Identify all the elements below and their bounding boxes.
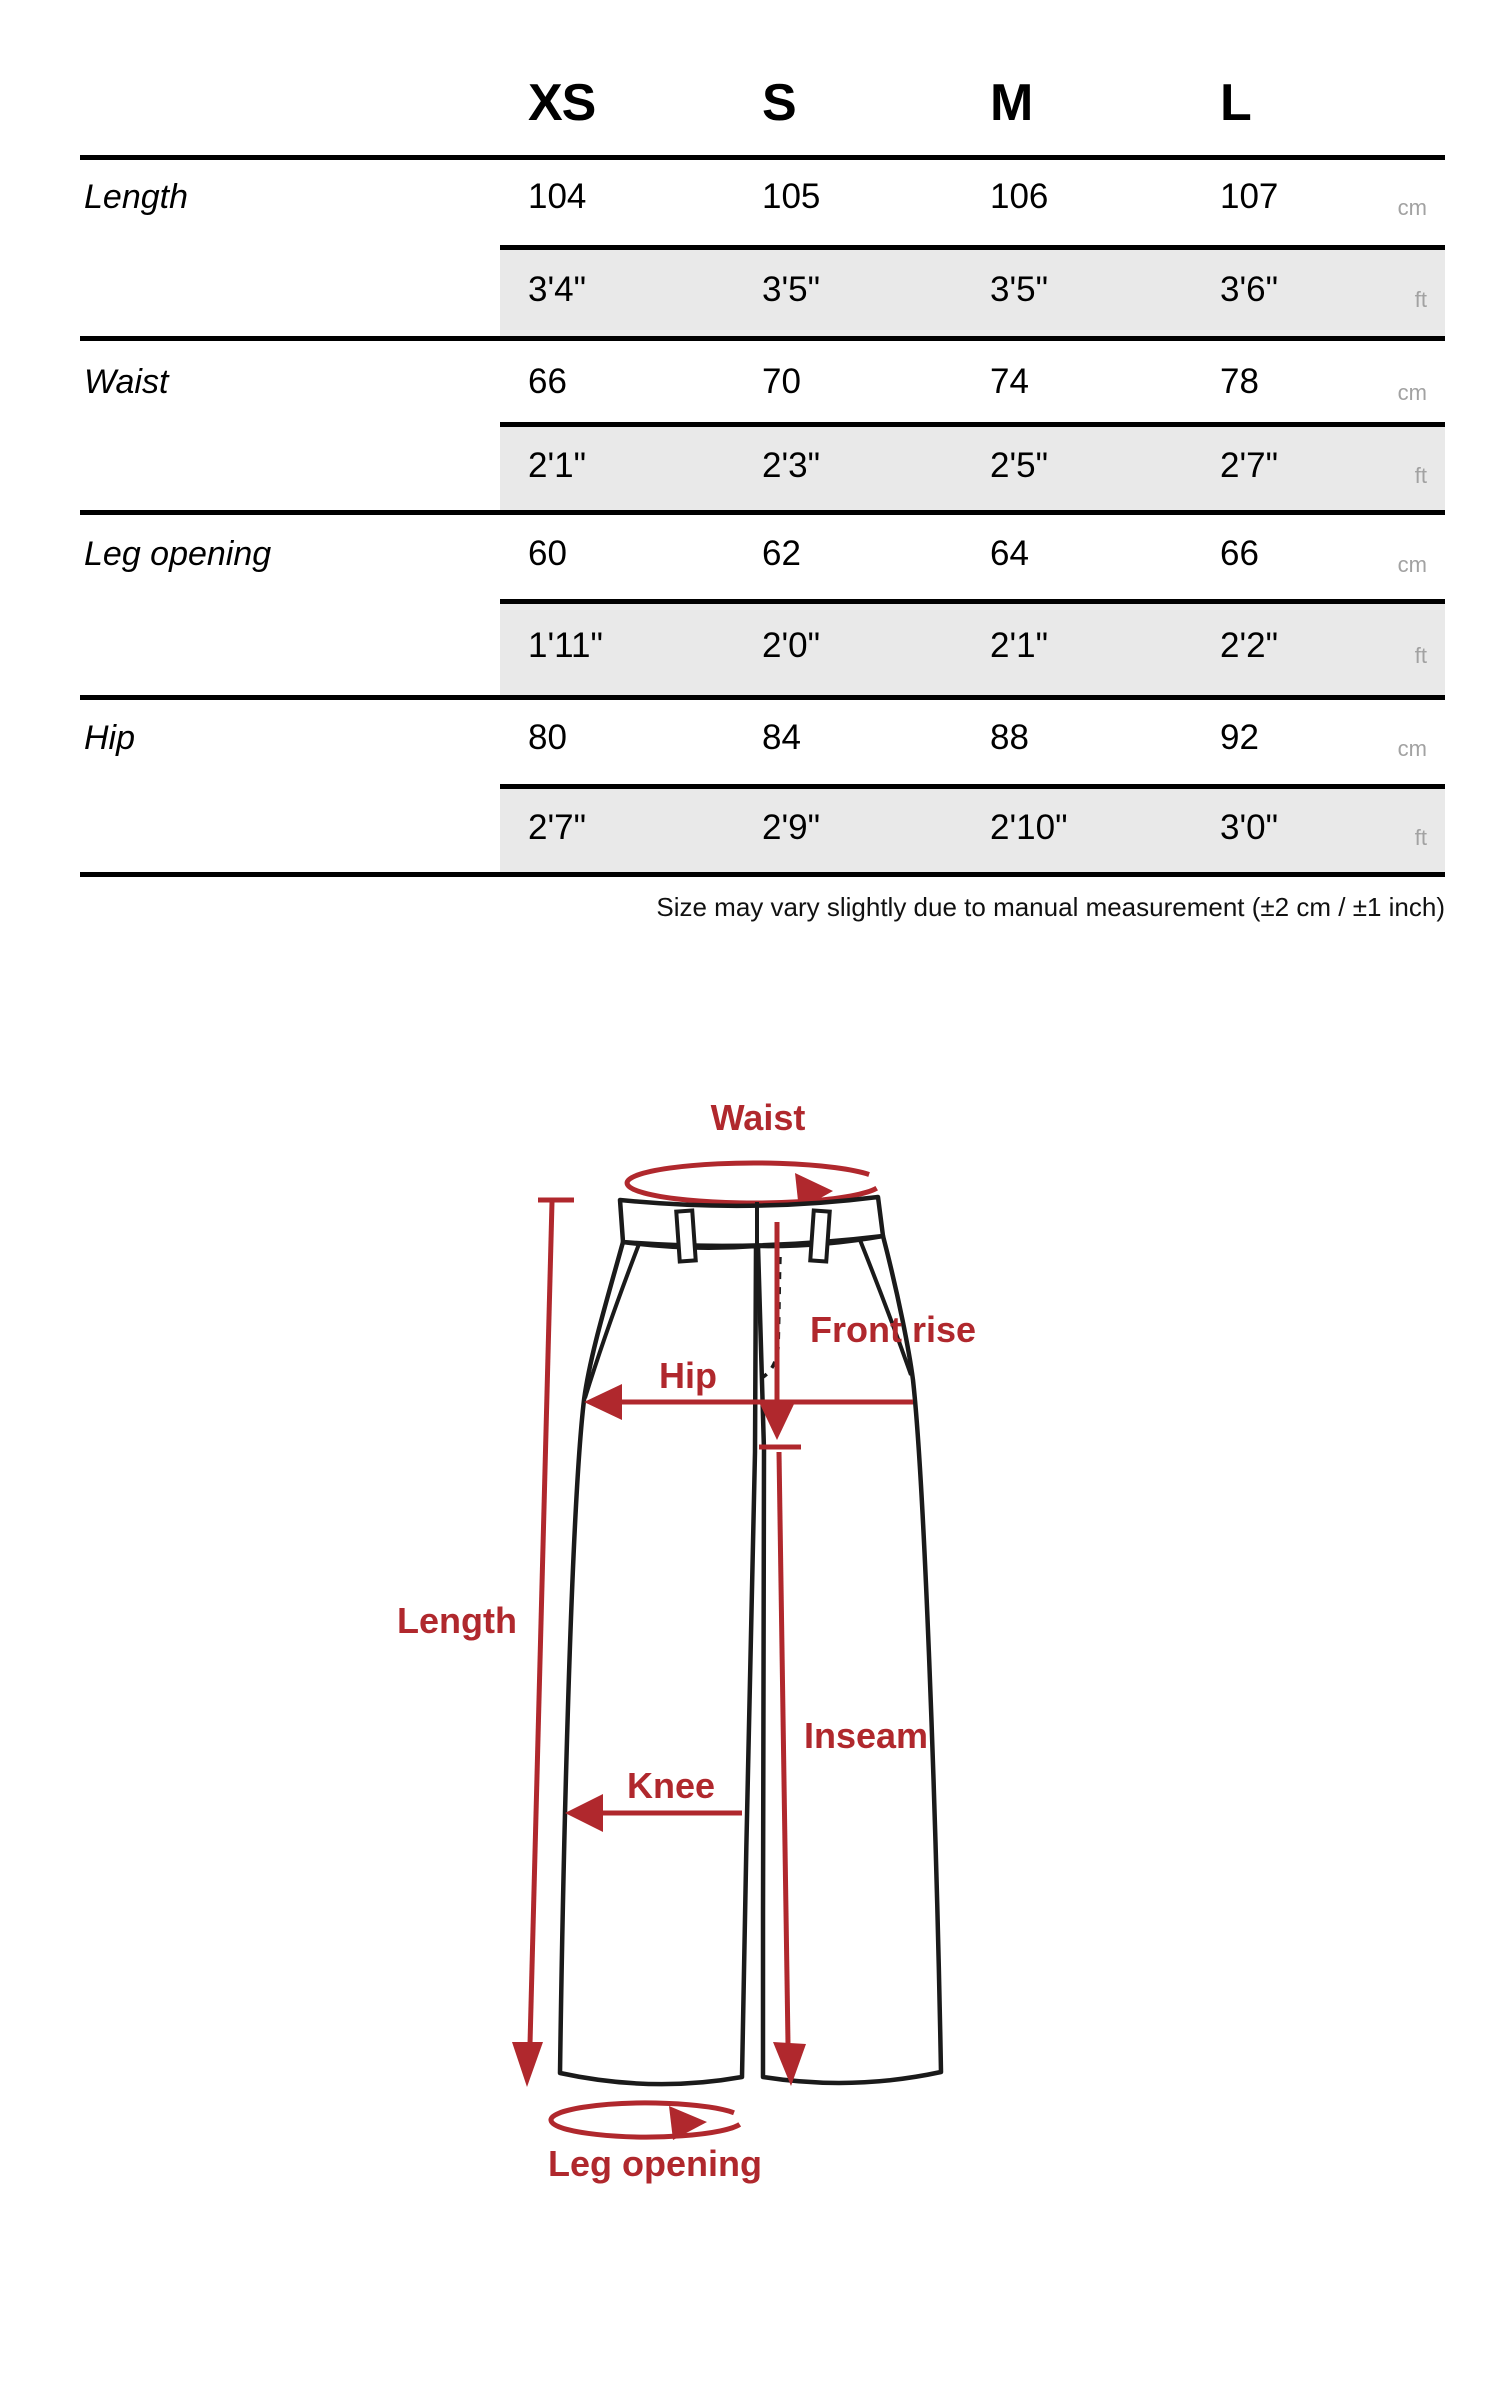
length-arrowhead-icon bbox=[512, 2042, 543, 2087]
waist-ellipse-arrow bbox=[627, 1163, 877, 1203]
length-line bbox=[530, 1202, 552, 2044]
pants-measurement-diagram: Waist Front rise Hip Length Inseam Knee … bbox=[0, 0, 1500, 2400]
pants-waistband-outline bbox=[620, 1197, 883, 1246]
pants-left-leg-outline bbox=[560, 1242, 756, 2084]
label-hip: Hip bbox=[659, 1355, 717, 1396]
label-inseam: Inseam bbox=[804, 1715, 928, 1756]
label-knee: Knee bbox=[627, 1765, 715, 1806]
label-waist: Waist bbox=[711, 1097, 806, 1138]
label-length: Length bbox=[397, 1600, 517, 1641]
size-guide-page: XS S M L Length 104 105 106 107 cm 3'4" … bbox=[0, 0, 1500, 2400]
belt-loop-left bbox=[676, 1211, 695, 1262]
label-front-rise: Front rise bbox=[810, 1309, 976, 1350]
belt-loop-right bbox=[810, 1211, 829, 1262]
label-leg-opening: Leg opening bbox=[548, 2143, 762, 2184]
leg-opening-ellipse-arrow bbox=[551, 2103, 740, 2137]
